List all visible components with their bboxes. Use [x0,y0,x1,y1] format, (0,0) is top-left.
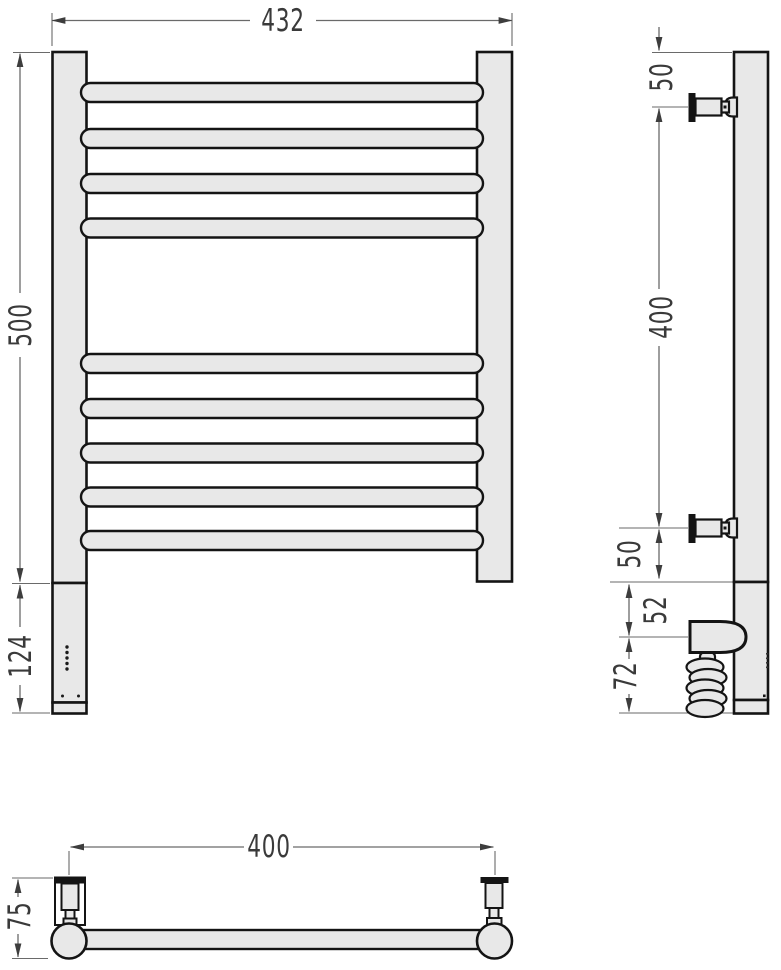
rung [81,129,483,148]
dim-heater-to-floor: 72 [608,639,644,712]
top-view: 400 75 [2,829,512,958]
bracket-arm [486,883,503,908]
bracket-arm [696,520,722,537]
wall-bracket-top [689,93,738,122]
dim-junction-to-heater: 52 [629,585,674,636]
dimension-label: 52 [638,595,674,624]
screw-dot [61,695,64,698]
bracket-arm [62,884,79,911]
rail-bar-top-view [60,930,480,949]
dim-overall-width: 432 [52,3,512,46]
top-left-bracket [52,878,87,959]
front-view: 432 500 124 [3,3,512,713]
dim-height: 500 [3,53,50,582]
dimension-label: 50 [644,62,680,91]
bracket-arm [696,99,722,116]
bracket-nut-dot [724,106,727,109]
bracket-nut-dot [724,527,727,530]
rung [81,174,483,193]
dim-bracket-spacing-side: 400 [644,109,680,527]
rung [81,531,483,550]
left-post-end-cap [53,703,87,714]
dimension-label: 75 [2,901,38,930]
dim-depth: 75 [2,878,53,959]
rungs [81,83,483,550]
dimension-label: 400 [247,829,291,865]
side-post [734,52,768,582]
dimension-label: 400 [644,295,680,339]
rung [81,399,483,418]
left-post [53,52,87,583]
post-section [52,924,87,959]
towel-rail-drawing: 432 500 124 [0,0,781,970]
dimension-label: 500 [3,303,39,347]
technical-drawing-page: 432 500 124 [0,0,781,970]
rung [81,488,483,507]
dimension-label: 72 [608,661,644,690]
bracket-neck [66,910,75,919]
dimension-label: 432 [261,3,305,39]
dimension-label: 50 [612,539,648,568]
rung [81,219,483,238]
screw-dot [77,695,80,698]
dim-bracket-spacing-top: 400 [69,829,495,875]
top-right-bracket [477,877,512,959]
wall-bracket-bottom [689,514,738,543]
heater-box [690,622,746,653]
rung [81,83,483,102]
post-section [477,924,512,959]
bracket-neck [490,908,499,918]
side-view: 50 400 50 52 72 [608,27,768,717]
dim-top-offset: 50 [644,27,680,92]
dimension-label: 124 [3,634,39,678]
dim-lower-section: 124 [3,584,50,714]
rung [81,444,483,463]
rung [81,354,483,373]
left-post-lower-section [53,583,87,703]
dim-bottom-offset: 50 [612,530,659,579]
coiled-cable [687,659,727,718]
screw-dot [763,695,766,698]
side-post-end-cap [734,700,768,714]
